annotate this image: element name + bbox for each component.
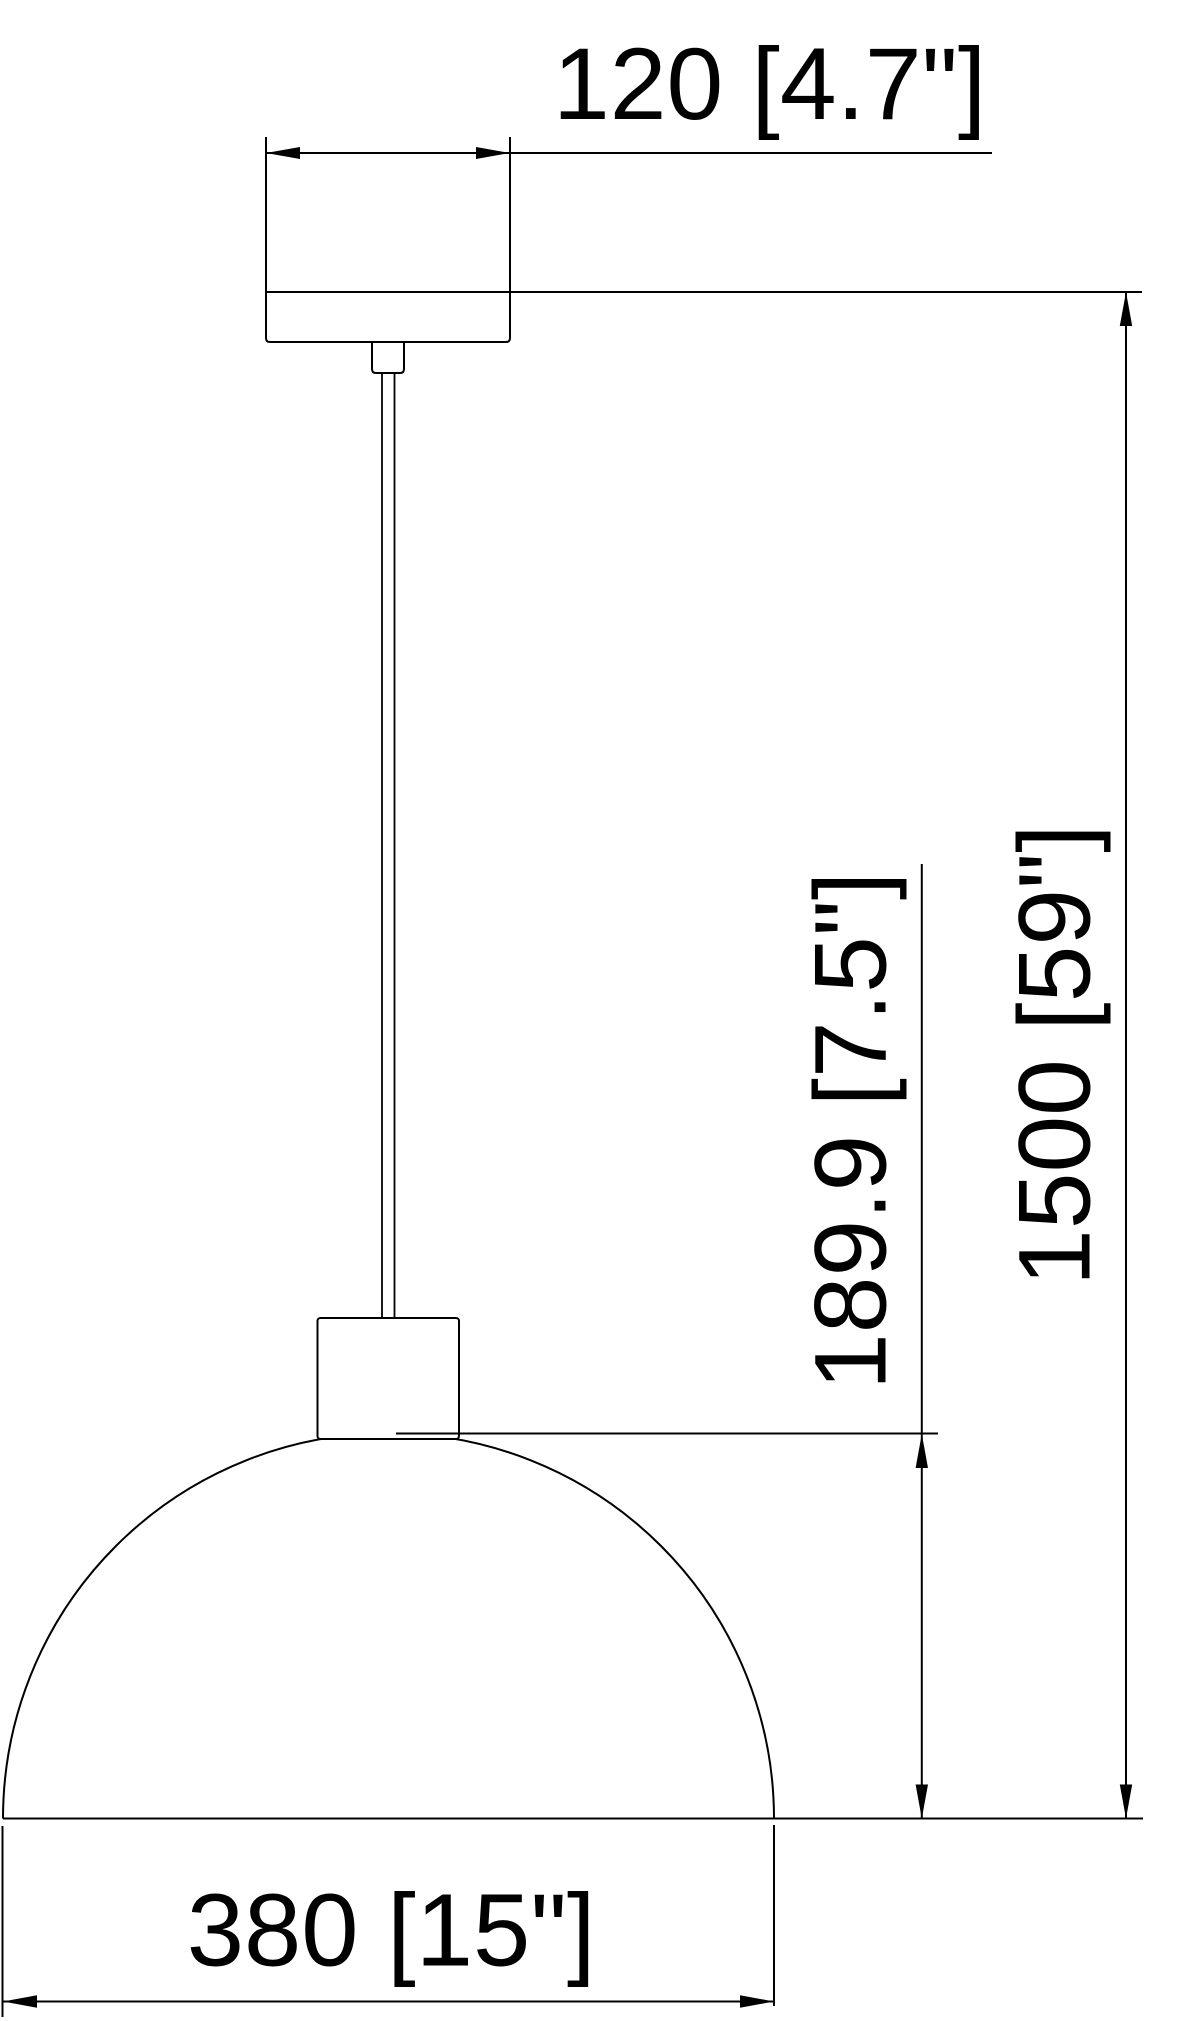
svg-text:380 [15"]: 380 [15"] [187, 1873, 596, 1988]
svg-text:120 [4.7"]: 120 [4.7"] [553, 27, 986, 141]
svg-text:189.9 [7.5"]: 189.9 [7.5"] [794, 872, 908, 1390]
svg-text:1500 [59"]: 1500 [59"] [998, 824, 1112, 1286]
